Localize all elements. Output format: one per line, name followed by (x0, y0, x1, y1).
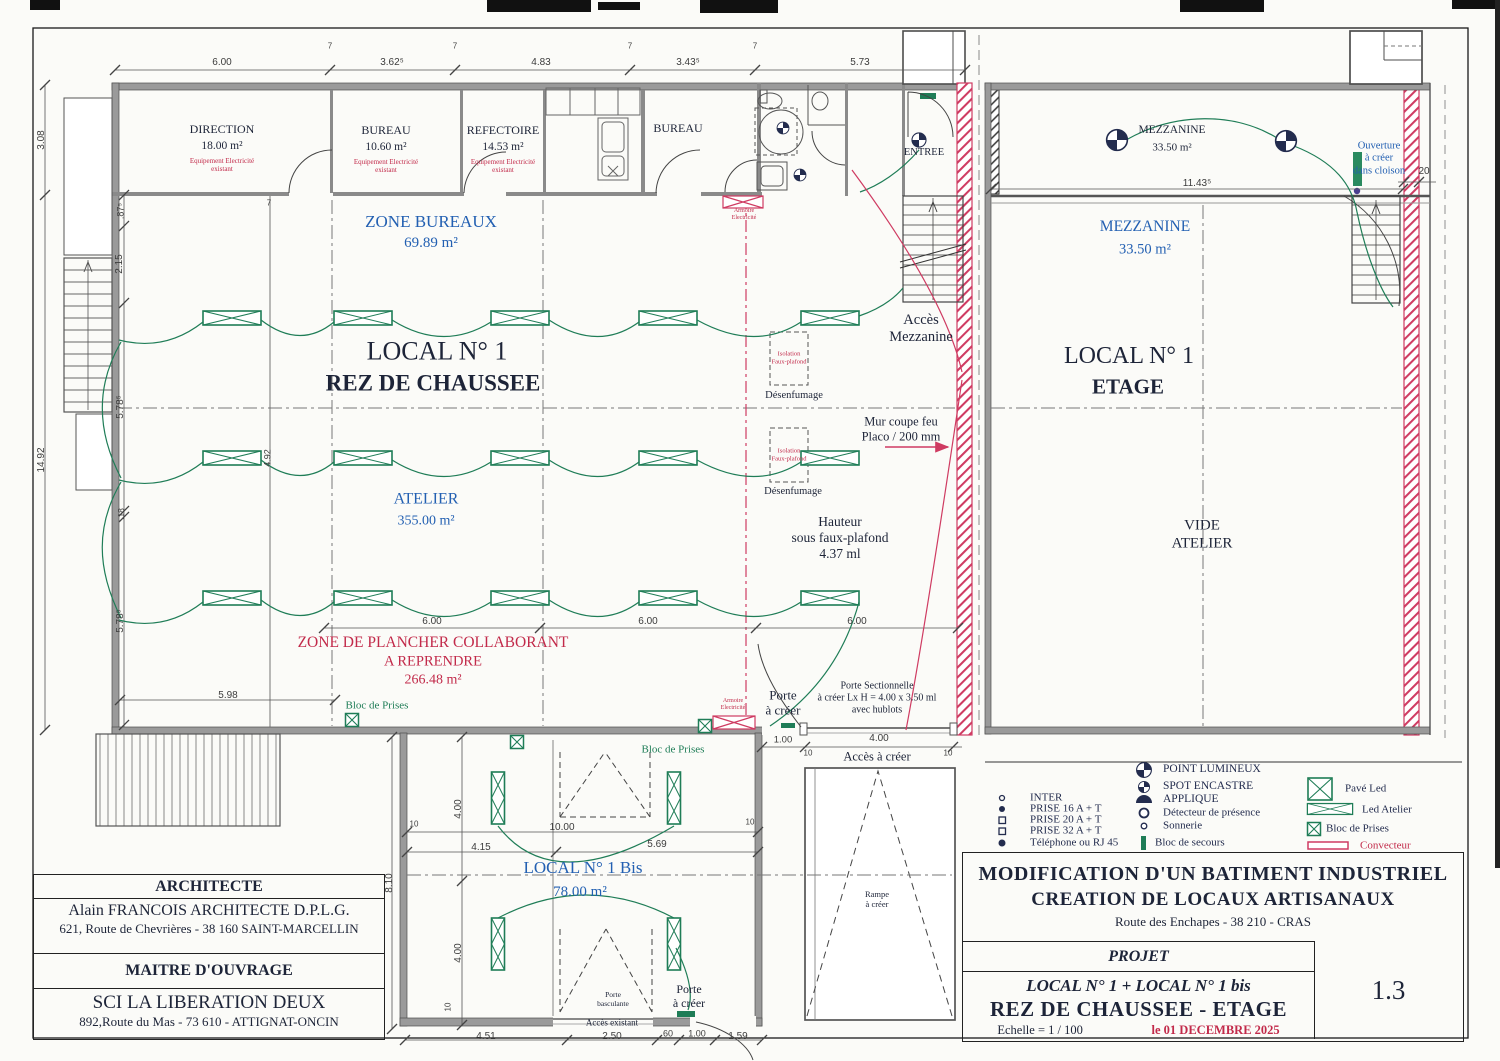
mezzanine-top: MEZZANINE (1138, 124, 1205, 138)
dim: 5.98 (218, 690, 237, 702)
local1bis-title: LOCAL N° 1 Bis (523, 858, 642, 878)
legend-bloc-secours: Bloc de secours (1155, 837, 1225, 850)
dim: 1.59 (728, 1031, 747, 1043)
porte-sectionnelle: Porte Sectionnelle à créer Lx H = 4.00 x… (818, 680, 937, 715)
dim: 14.92 (36, 447, 48, 472)
dim: 3.08 (36, 130, 48, 149)
room-bureau1: BUREAU (361, 123, 410, 137)
dim: 7 (267, 198, 271, 207)
dim: 7 (753, 41, 757, 50)
architect-address: 621, Route de Chevrières - 38 160 SAINT-… (34, 921, 384, 937)
drawing-date: le 01 DECEMBRE 2025 (1152, 1023, 1280, 1038)
drawing-scale: Echelle = 1 / 100 (997, 1023, 1083, 1038)
mur-coupe-feu: Mur coupe feu Placo / 200 mm (862, 414, 941, 444)
dim: 2.15 (114, 254, 126, 273)
projet-header: PROJET (963, 941, 1314, 972)
telephone-icon (999, 840, 1006, 847)
kitchen-fixtures (546, 88, 640, 180)
legend-telephone: Téléphone ou RJ 45 (1030, 837, 1118, 850)
dim: 10 (804, 748, 813, 757)
prise20-icon (999, 817, 1006, 824)
dim: 10 (944, 748, 953, 757)
led-atelier-icon (1307, 804, 1352, 815)
armoire-electricite-boxes (713, 196, 763, 729)
bloc-secours-icon (1141, 836, 1146, 850)
dim: 10 (443, 1003, 452, 1012)
room-bureau1-area: 10.60 m² (365, 141, 406, 155)
sonnerie-icon (1141, 823, 1147, 829)
floor-designation: REZ DE CHAUSSEE - ETAGE (963, 997, 1314, 1022)
legend-detecteur: Détecteur de présence (1163, 807, 1260, 820)
architect-header: ARCHITECTE (34, 875, 384, 899)
legend-point-lumineux: POINT LUMINEUX (1163, 763, 1261, 777)
mezzanine-blue: MEZZANINE (1100, 218, 1190, 236)
fire-wall-left (957, 83, 972, 735)
hauteur-faux-plafond: Hauteur sous faux-plafond 4.37 ml (791, 514, 888, 562)
dim: 10 (410, 819, 419, 828)
porte-a-creer-2: Porte à créer (673, 982, 705, 1010)
dim: 5.78⁵ (115, 609, 127, 633)
legend-pave-led: Pavé Led (1345, 783, 1386, 796)
fire-wall-right (1404, 83, 1419, 735)
legend-applique: APPLIQUE (1163, 793, 1219, 807)
atelier-area: 355.00 m² (397, 514, 454, 531)
architect-block: ARCHITECTE Alain FRANCOIS ARCHITECTE D.P… (33, 874, 385, 1040)
dim: 5.78⁵ (115, 395, 127, 419)
zone-plancher-area: 266.48 m² (404, 673, 461, 690)
ouverture-cloison: Ouverture à créer dans cloison (1353, 140, 1405, 177)
room-direction-area: 18.00 m² (201, 140, 242, 154)
dim: 10 (746, 817, 755, 826)
zone-bureaux: ZONE BUREAUX (365, 212, 497, 232)
mezzanine-blue-area: 33.50 m² (1119, 241, 1171, 258)
room-direction: DIRECTION (190, 122, 255, 136)
legend-spot-encastre: SPOT ENCASTRE (1163, 780, 1253, 794)
desenfumage-2: Désenfumage (764, 486, 822, 498)
dim: 1.00 (688, 1029, 706, 1040)
dim: 4.15 (471, 842, 490, 854)
dim: 8.10 (384, 873, 396, 892)
room-bureau1-note: Equipement Electricité existant (354, 158, 418, 175)
desenfumage-1: Désenfumage (765, 390, 823, 402)
spot-encastre-icon (1138, 781, 1149, 792)
bloc-prises-symbol (699, 720, 712, 733)
dim: 5.69 (647, 839, 666, 851)
zone-bureaux-area: 69.89 m² (404, 235, 458, 253)
local-designation: LOCAL N° 1 + LOCAL N° 1 bis (963, 976, 1314, 996)
prise32-icon (999, 828, 1006, 835)
dim: 60 (663, 1029, 673, 1040)
rampe-a-creer: Rampe à créer (865, 889, 889, 909)
isolation-1: Isolation Faux-plafond (771, 350, 806, 365)
dim: 11.43⁵ (1183, 178, 1211, 190)
porte-a-creer-1: Porte à créer (766, 688, 801, 719)
dim: 4.92 (263, 449, 274, 467)
local1-title: LOCAL N° 1 (367, 337, 508, 368)
owner-header: MAITRE D'OUVRAGE (34, 954, 384, 989)
dim: 3.43⁵ (676, 57, 700, 69)
dim: 4.83 (531, 57, 550, 69)
local1-etage-floor: ETAGE (1092, 375, 1164, 400)
dim: 5.73 (850, 57, 869, 69)
dim: 10.00 (549, 822, 574, 834)
armoire-electricite-1: Armoire Electricité (732, 208, 757, 222)
entrance-porch (903, 31, 965, 137)
zone-plancher-2: A REPRENDRE (384, 653, 482, 670)
project-title-line1: MODIFICATION D'UN BATIMENT INDUSTRIEL (963, 863, 1463, 886)
legend-convecteur: Convecteur (1360, 840, 1411, 853)
dim: 4.00 (453, 799, 465, 818)
stairs-acces-mezzanine (900, 196, 966, 302)
sheet-number: 1.3 (1314, 941, 1462, 1039)
applique-icon (1136, 795, 1152, 803)
acces-existant: Accès existant (586, 1018, 638, 1029)
room-refectoire-area: 14.53 m² (482, 141, 523, 155)
legend-sonnerie: Sonnerie (1163, 820, 1202, 833)
dim: 7 (453, 41, 457, 50)
room-refectoire-note: Equipement Electricité existant (471, 158, 535, 175)
room-direction-note: Equipement Electricité existant (190, 157, 254, 174)
dim: 6.00 (847, 616, 866, 628)
local1bis-area: 78.00 m² (553, 884, 607, 902)
dim: 7 (628, 41, 632, 50)
dim: .87⁵ (116, 203, 127, 219)
local1-floor: REZ DE CHAUSSEE (326, 369, 541, 396)
dim: 6.00 (422, 616, 441, 628)
inter-icon (1000, 796, 1005, 801)
bloc-prises-symbol (511, 736, 524, 749)
project-address: Route des Enchapes - 38 210 - CRAS (963, 914, 1463, 930)
bloc-prises-symbol (346, 714, 359, 727)
floor-plan-sheet: MODIFICATION D'UN BATIMENT INDUSTRIEL CR… (0, 0, 1500, 1061)
prise16-icon (999, 806, 1005, 812)
dim: 6.00 (212, 57, 231, 69)
bloc-prises-2: Bloc de Prises (642, 744, 705, 757)
isolation-2: Isolation Faux-plafond (771, 447, 806, 462)
dim: 6.00 (638, 616, 657, 628)
porte-basculante: Porte basculante (597, 991, 629, 1009)
dim: 3.62⁵ (380, 57, 404, 69)
armoire-electricite-2: Armoire Electricité (721, 698, 746, 712)
acces-a-creer: Accès à créer (843, 750, 910, 765)
wc-fixtures (725, 85, 845, 192)
owner-address: 892,Route du Mas - 73 610 - ATTIGNAT-ONC… (34, 1014, 384, 1030)
bloc-prises-1: Bloc de Prises (346, 700, 409, 713)
point-lumineux-symbols (777, 122, 1296, 181)
dim: 1.00 (774, 734, 793, 745)
dim: .18 (116, 508, 126, 520)
bloc-prises-icon (1308, 823, 1321, 836)
entree: ENTREE (904, 147, 944, 159)
room-refectoire: REFECTOIRE (467, 123, 539, 137)
detecteur-icon (1140, 809, 1149, 818)
local1-etage-title: LOCAL N° 1 (1064, 342, 1194, 370)
point-lumineux-icon (1137, 763, 1152, 778)
convecteur-icon (1308, 842, 1348, 849)
project-title-line2: CREATION DE LOCAUX ARTISANAUX (963, 889, 1463, 911)
vide-atelier: VIDE ATELIER (1172, 517, 1233, 552)
dim: 4.00 (453, 943, 465, 962)
acces-mezzanine: Accès Mezzanine (889, 312, 953, 346)
room-bureau2: BUREAU (653, 121, 702, 135)
owner-name: SCI LA LIBERATION DEUX (34, 992, 384, 1014)
dim: 4.51 (476, 1031, 495, 1043)
zone-plancher-1: ZONE DE PLANCHER COLLABORANT (298, 634, 569, 652)
legend-bloc-prises: Bloc de Prises (1326, 823, 1389, 836)
architect-name: Alain FRANCOIS ARCHITECTE D.P.L.G. (34, 902, 384, 920)
legend-led-atelier: Led Atelier (1362, 804, 1412, 817)
right-building (985, 31, 1430, 735)
dim: 4.00 (869, 733, 888, 745)
mezzanine-top-area: 33.50 m² (1152, 142, 1191, 155)
atelier: ATELIER (394, 491, 459, 510)
dim: 20 (1418, 166, 1429, 178)
dim: 7 (328, 41, 332, 50)
title-block: MODIFICATION D'UN BATIMENT INDUSTRIEL CR… (962, 852, 1464, 1042)
dim: 2.50 (602, 1031, 621, 1043)
